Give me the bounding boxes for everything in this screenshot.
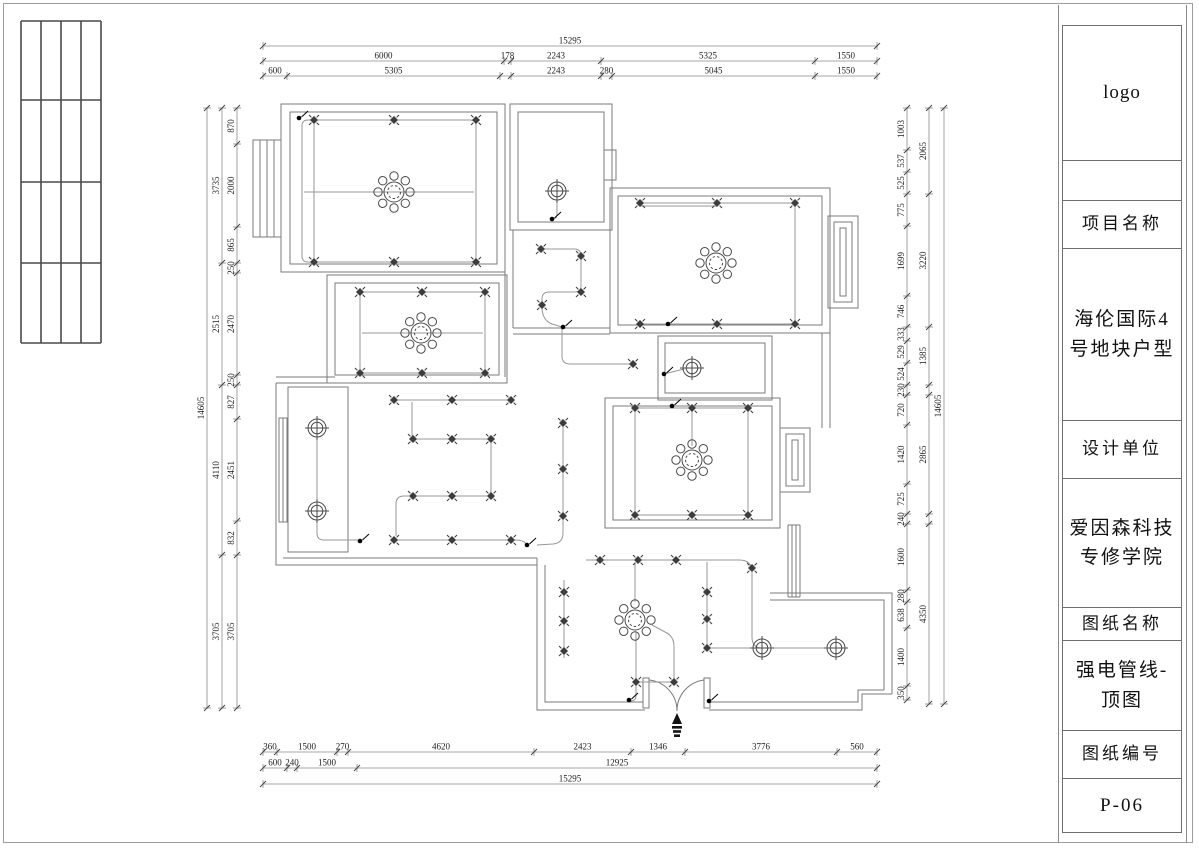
- spotlight-symbol: [537, 300, 547, 310]
- spotlight-symbol: [558, 418, 568, 428]
- dimension-label: 2243: [547, 51, 566, 61]
- dimension-label: 2000: [226, 176, 236, 195]
- dimension-label: 5325: [699, 51, 718, 61]
- spotlight-symbol: [702, 643, 712, 653]
- spotlight-symbol: [480, 287, 490, 297]
- dimension-label: 600: [268, 66, 282, 76]
- spotlight-symbol: [389, 395, 399, 405]
- dimension-label: 270: [336, 742, 350, 752]
- dimension-label: 280: [896, 589, 906, 603]
- ceiling-light-symbol: [680, 356, 704, 380]
- dimension-label: 178: [501, 51, 515, 61]
- designer-label: 设计单位: [1063, 421, 1181, 479]
- spotlight-symbol: [628, 359, 638, 369]
- dimension-label: 15295: [559, 774, 582, 784]
- ceiling-light-symbol: [305, 416, 329, 440]
- adjacent-drawing-grid: [21, 21, 101, 343]
- spotlight-symbol: [630, 510, 640, 520]
- spotlight-symbol: [702, 614, 712, 624]
- junction-dot: [662, 367, 673, 376]
- spotlight-symbol: [447, 491, 457, 501]
- junction-dot: [550, 212, 561, 221]
- chandelier-symbol: [615, 600, 655, 640]
- spotlight-symbol: [633, 555, 643, 565]
- title-block: logo 项目名称 海伦国际4号地块户型 设计单位 爱因森科技专修学院 图纸名称…: [1062, 25, 1182, 833]
- spotlight-symbol: [355, 368, 365, 378]
- spotlight-symbol: [506, 395, 516, 405]
- spotlight-symbol: [447, 395, 457, 405]
- spotlight-symbol: [355, 287, 365, 297]
- floor-plan-canvas: 1529560001782243532515506005305224328050…: [0, 0, 1199, 848]
- dimension-label: 4350: [918, 605, 928, 624]
- spotlight-symbol: [671, 555, 681, 565]
- spotlight-symbol: [790, 198, 800, 208]
- drawing-sheet: { "title_block": { "logo": "logo", "proj…: [0, 0, 1199, 848]
- spotlight-symbol: [558, 511, 568, 521]
- spotlight-symbol: [417, 287, 427, 297]
- dimension-label: 5305: [385, 66, 404, 76]
- dimension-label: 14605: [933, 394, 943, 417]
- dimension-label: 3705: [211, 622, 221, 641]
- dimension-label: 1400: [896, 648, 906, 667]
- dimension-label: 832: [226, 531, 236, 545]
- dimension-chains: 1529560001782243532515506005305224328050…: [196, 36, 948, 789]
- spotlight-symbol: [576, 251, 586, 261]
- dimension-label: 280: [600, 66, 614, 76]
- junction-dot: [358, 534, 369, 543]
- dimension-label: 600: [268, 758, 282, 768]
- dimension-label: 1600: [896, 548, 906, 567]
- light-fixtures: [297, 111, 848, 737]
- dimension-label: 1500: [298, 742, 317, 752]
- spotlight-symbol: [486, 491, 496, 501]
- spotlight-symbol: [389, 535, 399, 545]
- spotlight-symbol: [447, 434, 457, 444]
- dimension-label: 2515: [211, 315, 221, 334]
- spotlight-symbol: [480, 368, 490, 378]
- dimension-label: 1003: [896, 120, 906, 139]
- spotlight-symbol: [790, 319, 800, 329]
- spotlight-symbol: [471, 115, 481, 125]
- dimension-label: 250: [226, 261, 236, 275]
- spotlight-symbol: [630, 403, 640, 413]
- dimension-label: 638: [896, 608, 906, 622]
- spotlight-symbol: [309, 257, 319, 267]
- dimension-label: 240: [285, 758, 299, 768]
- spotlight-symbol: [635, 198, 645, 208]
- spotlight-symbol: [687, 510, 697, 520]
- dimension-label: 560: [850, 742, 864, 752]
- spotlight-symbol: [747, 563, 757, 573]
- project-label: 项目名称: [1063, 201, 1181, 249]
- dimension-label: 1500: [318, 758, 337, 768]
- dimension-label: 3705: [226, 622, 236, 641]
- dimension-label: 1550: [837, 51, 856, 61]
- walls: [253, 104, 892, 711]
- dimension-label: 4620: [432, 742, 451, 752]
- spotlight-symbol: [687, 403, 697, 413]
- spotlight-symbol: [712, 198, 722, 208]
- dimension-label: 14605: [196, 396, 206, 419]
- ceiling-light-symbol: [824, 636, 848, 660]
- dimension-label: 350: [896, 686, 906, 700]
- spotlight-symbol: [309, 115, 319, 125]
- spotlight-symbol: [486, 434, 496, 444]
- entry-arrow: [672, 713, 682, 737]
- spotlight-symbol: [536, 244, 546, 254]
- ceiling-light-symbol: [545, 179, 569, 203]
- dimension-label: 6000: [375, 51, 394, 61]
- spotlight-symbol: [408, 434, 418, 444]
- dimension-label: 1699: [896, 252, 906, 271]
- chandelier-symbol: [696, 243, 736, 283]
- spotlight-symbol: [559, 646, 569, 656]
- dimension-label: 775: [896, 203, 906, 217]
- logo-cell: logo: [1063, 26, 1181, 161]
- spotlight-symbol: [702, 587, 712, 597]
- dimension-label: 529: [896, 345, 906, 359]
- dimension-label: 3776: [752, 742, 771, 752]
- dimension-label: 1550: [837, 66, 856, 76]
- spotlight-symbol: [417, 368, 427, 378]
- dimension-label: 360: [263, 742, 277, 752]
- dimension-label: 746: [896, 304, 906, 318]
- dimension-label: 230: [896, 383, 906, 397]
- dimension-label: 15295: [559, 36, 582, 46]
- dimension-label: 240: [896, 512, 906, 526]
- dimension-label: 537: [896, 154, 906, 168]
- dimension-label: 2423: [574, 742, 593, 752]
- spotlight-symbol: [389, 257, 399, 267]
- project-name: 海伦国际4号地块户型: [1063, 249, 1181, 421]
- dimension-label: 1385: [918, 347, 928, 366]
- dimension-label: 3220: [918, 251, 928, 270]
- spotlight-symbol: [743, 403, 753, 413]
- spotlight-symbol: [447, 535, 457, 545]
- spotlight-symbol: [471, 257, 481, 267]
- spotlight-symbol: [559, 616, 569, 626]
- spotlight-symbol: [576, 287, 586, 297]
- empty-cell: [1063, 161, 1181, 201]
- junction-dot: [525, 538, 536, 547]
- ceiling-light-symbol: [305, 499, 329, 523]
- drawing-name-label: 图纸名称: [1063, 608, 1181, 641]
- dimension-label: 12925: [606, 758, 629, 768]
- dimension-label: 4110: [211, 461, 221, 479]
- drawing-number-label: 图纸编号: [1063, 731, 1181, 779]
- ceiling-light-symbol: [750, 636, 774, 660]
- spotlight-symbol: [631, 677, 641, 687]
- dimension-label: 725: [896, 492, 906, 506]
- dimension-label: 250: [226, 373, 236, 387]
- dimension-label: 524: [896, 367, 906, 381]
- spotlight-symbol: [669, 677, 679, 687]
- dimension-label: 2451: [226, 461, 236, 479]
- dimension-label: 3735: [211, 176, 221, 195]
- dimension-label: 1346: [649, 742, 668, 752]
- dimension-label: 865: [226, 238, 236, 252]
- spotlight-symbol: [743, 510, 753, 520]
- dimension-label: 525: [896, 176, 906, 190]
- dimension-label: 2065: [918, 142, 928, 161]
- dimension-label: 1420: [896, 445, 906, 464]
- dimension-label: 827: [226, 395, 236, 409]
- spotlight-symbol: [408, 491, 418, 501]
- spotlight-symbol: [506, 535, 516, 545]
- dimension-label: 5045: [705, 66, 724, 76]
- spotlight-symbol: [559, 587, 569, 597]
- spotlight-symbol: [558, 464, 568, 474]
- dimension-label: 2470: [226, 315, 236, 334]
- spotlight-symbol: [595, 555, 605, 565]
- dimension-label: 333: [896, 327, 906, 341]
- dimension-label: 720: [896, 403, 906, 417]
- spotlight-symbol: [712, 319, 722, 329]
- designer-name: 爱因森科技专修学院: [1063, 479, 1181, 608]
- spotlight-symbol: [635, 319, 645, 329]
- drawing-name: 强电管线-顶图: [1063, 641, 1181, 731]
- spotlight-symbol: [389, 115, 399, 125]
- dimension-label: 2865: [918, 445, 928, 464]
- drawing-number: P-06: [1063, 779, 1181, 832]
- dimension-label: 870: [226, 119, 236, 133]
- dimension-label: 2243: [547, 66, 566, 76]
